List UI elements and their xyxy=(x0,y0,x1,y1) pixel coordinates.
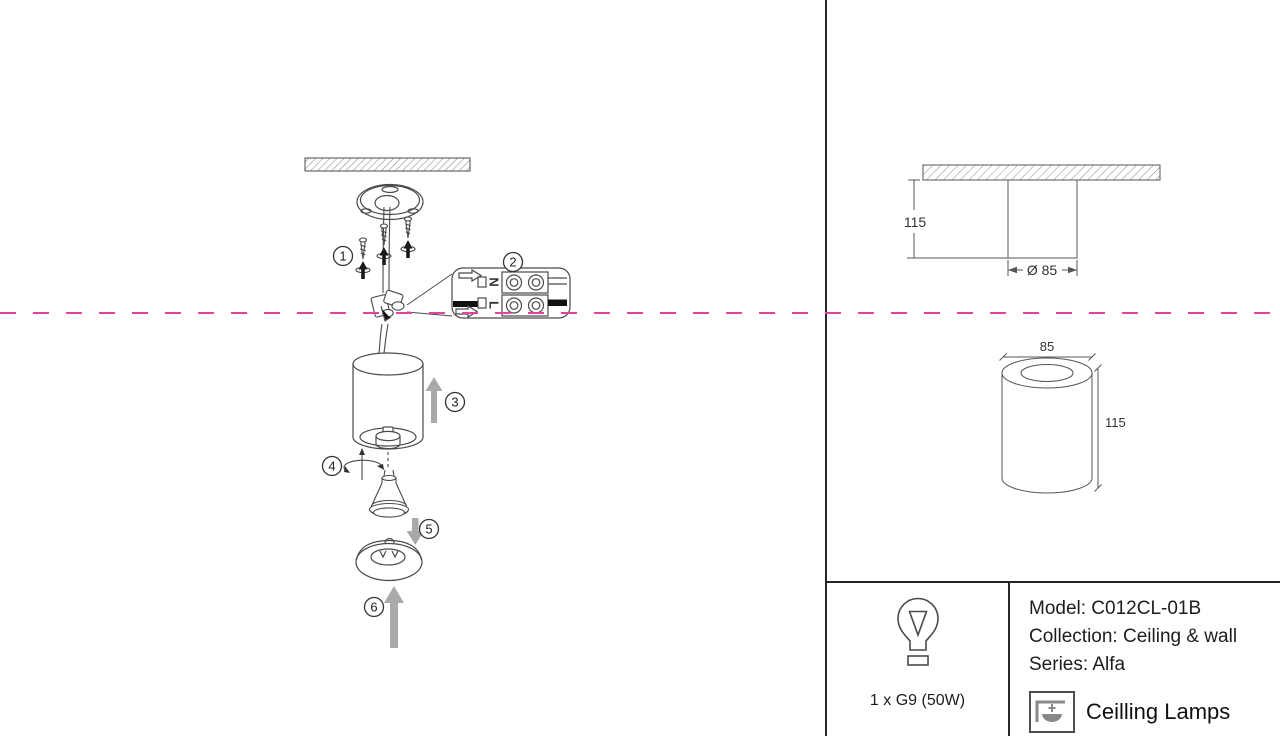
bulb-spec-cell: 1 x G9 (50W) xyxy=(827,583,1008,736)
step-4-marker: 4 xyxy=(323,457,342,476)
perspective-diameter-label: 85 xyxy=(1040,339,1054,354)
leader-lines xyxy=(407,274,452,316)
model-text: Model: C012CL-01B xyxy=(1029,595,1280,623)
perspective-view-drawing: 85 115 xyxy=(1000,339,1126,493)
step-6-number: 6 xyxy=(370,600,377,615)
collection-text: Collection: Ceiling & wall xyxy=(1029,623,1280,651)
step-4-number: 4 xyxy=(328,459,335,474)
ceiling-lamp-icon xyxy=(1029,691,1075,733)
terminal-live-label: L xyxy=(487,301,502,309)
bulb xyxy=(370,470,409,517)
step-5-number: 5 xyxy=(425,522,432,537)
ceiling-bar xyxy=(305,158,470,171)
screws-step-1 xyxy=(356,217,415,279)
terminal-neutral-label: N xyxy=(487,277,502,286)
step-1-marker: 1 xyxy=(334,247,353,266)
category-row: Ceilling Lamps xyxy=(1029,691,1280,733)
series-text: Series: Alfa xyxy=(1029,651,1280,679)
step-3-arrow-icon xyxy=(426,377,443,423)
perspective-height-label: 115 xyxy=(1105,415,1126,430)
step-6-marker: 6 xyxy=(365,598,384,617)
step-3-number: 3 xyxy=(451,395,458,410)
terminal-block-detail: N L xyxy=(452,268,570,318)
trim-ring xyxy=(356,539,422,581)
category-label: Ceilling Lamps xyxy=(1086,699,1230,725)
connector-cable xyxy=(379,324,388,353)
wire-connector xyxy=(371,290,404,321)
product-info-panel: 1 x G9 (50W) Model: C012CL-01B Collectio… xyxy=(827,581,1280,736)
side-view-drawing: 115 Ø 85 xyxy=(904,165,1160,278)
step-3-marker: 3 xyxy=(446,393,465,412)
step-2-marker: 2 xyxy=(504,253,523,272)
instruction-sheet: 1 xyxy=(0,0,1280,736)
fold-line xyxy=(0,312,1280,314)
bulb-icon xyxy=(887,596,949,668)
step-1-number: 1 xyxy=(339,249,346,264)
bulb-spec-label: 1 x G9 (50W) xyxy=(870,692,965,710)
installation-diagram: 1 xyxy=(0,0,826,736)
rotation-indicator xyxy=(344,448,388,480)
step-5-marker: 5 xyxy=(420,520,439,539)
side-view-diameter-label: Ø 85 xyxy=(1027,262,1058,278)
step-6-arrow-icon xyxy=(384,586,404,648)
lamp-body xyxy=(353,353,423,449)
product-details-cell: Model: C012CL-01B Collection: Ceiling & … xyxy=(1008,583,1280,736)
step-2-number: 2 xyxy=(509,255,516,270)
dimension-drawings: 115 Ø 85 85 115 xyxy=(826,0,1280,581)
side-view-height-label: 115 xyxy=(904,214,927,230)
